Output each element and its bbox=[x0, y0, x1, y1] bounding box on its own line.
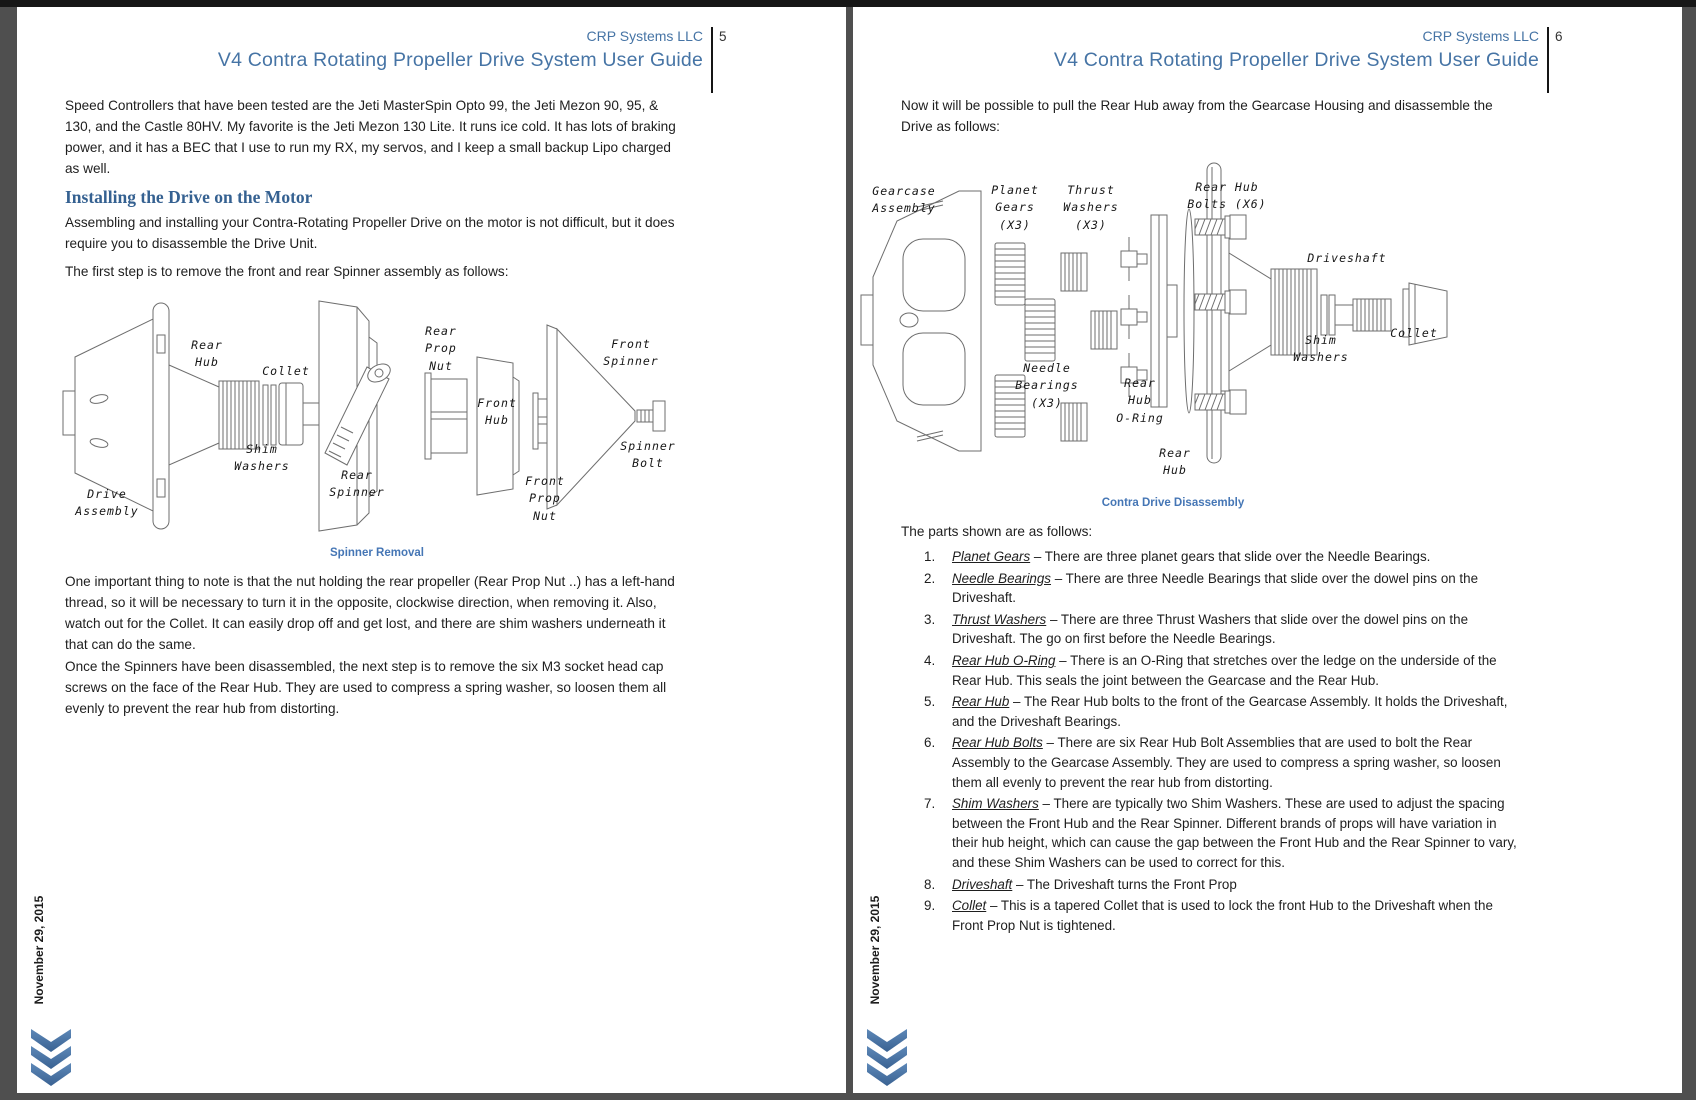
list-item: 5.Rear Hub – The Rear Hub bolts to the f… bbox=[897, 692, 1525, 731]
paragraph-left-hand-thread: One important thing to note is that the … bbox=[65, 571, 679, 655]
label-rear-spinner: Rear Spinner bbox=[312, 467, 402, 502]
part-term: Rear Hub O-Ring bbox=[952, 653, 1055, 668]
label-front-spinner: Front Spinner bbox=[591, 336, 671, 371]
document-page-5: CRP Systems LLC 5 V4 Contra Rotating Pro… bbox=[17, 7, 846, 1093]
label-gearcase-assembly: Gearcase Assembly bbox=[859, 183, 949, 218]
document-title: V4 Contra Rotating Propeller Drive Syste… bbox=[853, 49, 1539, 72]
document-title: V4 Contra Rotating Propeller Drive Syste… bbox=[17, 49, 703, 72]
part-term: Shim Washers bbox=[952, 796, 1039, 811]
section-heading: Installing the Drive on the Motor bbox=[65, 187, 312, 208]
paragraph-parts-intro: The parts shown are as follows: bbox=[901, 521, 1515, 542]
part-desc: – The Driveshaft turns the Front Prop bbox=[1012, 877, 1237, 892]
label-drive-assembly: Drive Assembly bbox=[62, 486, 152, 521]
figure-spinner-removal: Rear Hub Collet Shim Washers Rear Spinne… bbox=[57, 293, 697, 545]
document-page-6: CRP Systems LLC 6 V4 Contra Rotating Pro… bbox=[853, 7, 1682, 1093]
part-term: Rear Hub Bolts bbox=[952, 735, 1043, 750]
sidebar-date: November 29, 2015 bbox=[868, 885, 884, 1015]
part-term: Thrust Washers bbox=[952, 612, 1046, 627]
label-front-prop-nut: Front Prop Nut bbox=[510, 473, 580, 525]
label-shim-washers: Shim Washers bbox=[1281, 332, 1361, 367]
list-item: 1.Planet Gears – There are three planet … bbox=[897, 547, 1525, 567]
part-term: Rear Hub bbox=[952, 694, 1009, 709]
list-item: 4.Rear Hub O-Ring – There is an O-Ring t… bbox=[897, 651, 1525, 690]
label-rear-hub-bolts: Rear Hub Bolts (X6) bbox=[1177, 179, 1277, 214]
paragraph-pull-rear-hub: Now it will be possible to pull the Rear… bbox=[901, 95, 1515, 137]
list-item: 2.Needle Bearings – There are three Need… bbox=[897, 569, 1525, 608]
page-number: 6 bbox=[1555, 29, 1563, 44]
label-rear-hub: Rear Hub bbox=[167, 337, 247, 372]
label-rear-prop-nut: Rear Prop Nut bbox=[406, 323, 476, 375]
label-needle-bearings: Needle Bearings (X3) bbox=[1007, 360, 1087, 412]
label-collet: Collet bbox=[1374, 325, 1454, 342]
paragraph-first-step: The first step is to remove the front an… bbox=[65, 261, 679, 282]
part-term: Driveshaft bbox=[952, 877, 1012, 892]
parts-list: 1.Planet Gears – There are three planet … bbox=[897, 547, 1525, 937]
figure-caption: Spinner Removal bbox=[57, 547, 697, 559]
label-rear-hub-o-ring: Rear Hub O-Ring bbox=[1105, 375, 1175, 427]
part-term: Collet bbox=[952, 898, 986, 913]
window-top-bar bbox=[0, 0, 1696, 7]
header-company: CRP Systems LLC bbox=[17, 28, 703, 44]
label-rear-hub: Rear Hub bbox=[1140, 445, 1210, 480]
part-desc: – The Rear Hub bolts to the front of the… bbox=[952, 694, 1508, 729]
label-thrust-washers: Thrust Washers (X3) bbox=[1051, 182, 1131, 234]
chevron-down-icon bbox=[865, 1029, 909, 1096]
spinner-removal-diagram bbox=[57, 293, 697, 545]
figure-contra-drive-disassembly: Gearcase Assembly Planet Gears (X3) Thru… bbox=[859, 157, 1487, 495]
label-front-hub: Front Hub bbox=[462, 395, 532, 430]
list-item: 6.Rear Hub Bolts – There are six Rear Hu… bbox=[897, 733, 1525, 792]
label-planet-gears: Planet Gears (X3) bbox=[975, 182, 1055, 234]
paragraph-speed-controllers: Speed Controllers that have been tested … bbox=[65, 95, 679, 179]
label-shim-washers: Shim Washers bbox=[217, 441, 307, 476]
list-item: 7.Shim Washers – There are typically two… bbox=[897, 794, 1525, 872]
sidebar-date: November 29, 2015 bbox=[32, 885, 48, 1015]
paragraph-assembling: Assembling and installing your Contra-Ro… bbox=[65, 212, 679, 254]
list-item: 3.Thrust Washers – There are three Thrus… bbox=[897, 610, 1525, 649]
page-number: 5 bbox=[719, 29, 727, 44]
list-item: 9.Collet – This is a tapered Collet that… bbox=[897, 896, 1525, 935]
part-desc: – This is a tapered Collet that is used … bbox=[952, 898, 1493, 933]
figure-caption: Contra Drive Disassembly bbox=[859, 497, 1487, 509]
part-term: Planet Gears bbox=[952, 549, 1030, 564]
list-item: 8.Driveshaft – The Driveshaft turns the … bbox=[897, 875, 1525, 895]
label-collet: Collet bbox=[251, 363, 321, 380]
header-divider-rule bbox=[1547, 27, 1549, 93]
header-company: CRP Systems LLC bbox=[853, 28, 1539, 44]
header-divider-rule bbox=[711, 27, 713, 93]
label-driveshaft: Driveshaft bbox=[1297, 250, 1397, 267]
chevron-down-icon bbox=[29, 1029, 73, 1096]
part-desc: – There are three planet gears that slid… bbox=[1030, 549, 1430, 564]
label-spinner-bolt: Spinner Bolt bbox=[608, 438, 688, 473]
part-term: Needle Bearings bbox=[952, 571, 1051, 586]
paragraph-cap-screws: Once the Spinners have been disassembled… bbox=[65, 656, 679, 719]
